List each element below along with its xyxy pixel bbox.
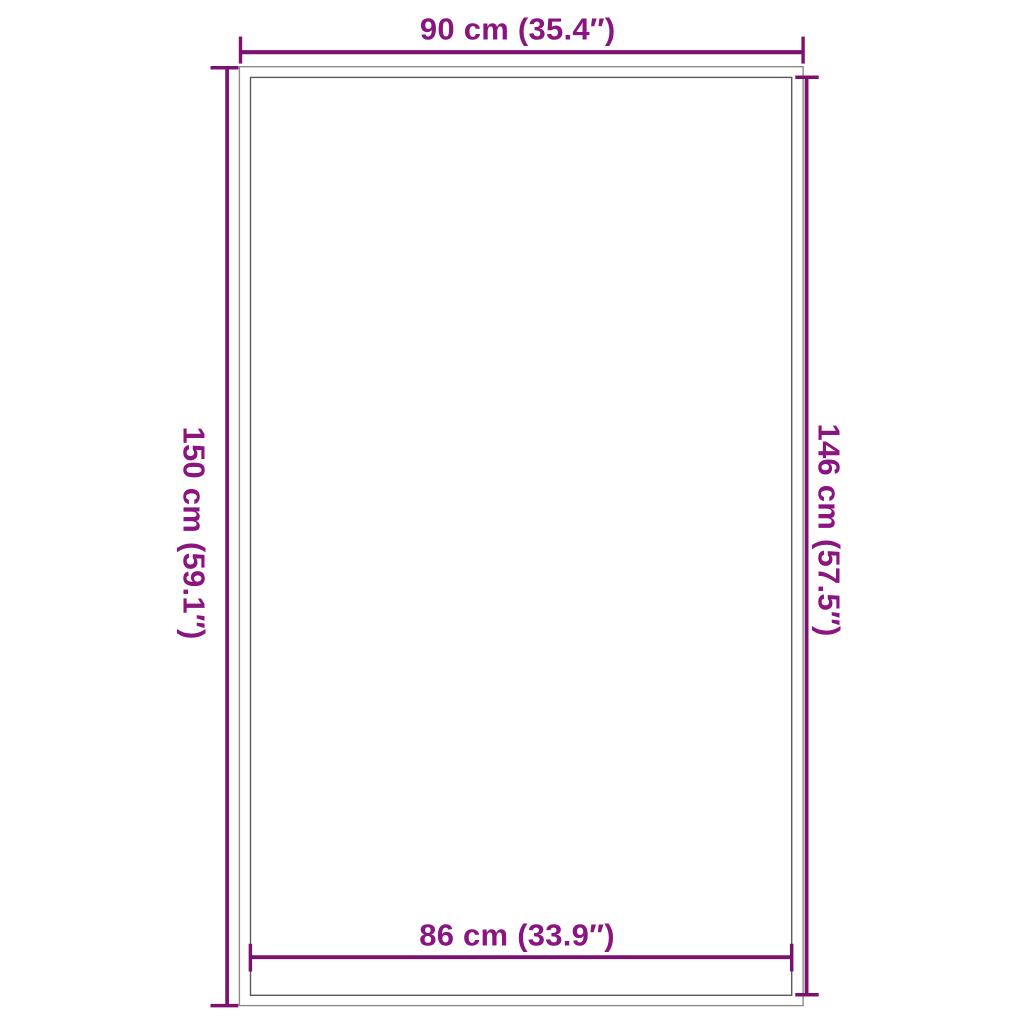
svg-text:86 cm (33.9″): 86 cm (33.9″) <box>419 917 615 952</box>
svg-text:150 cm (59.1″): 150 cm (59.1″) <box>176 426 211 639</box>
svg-text:90 cm (35.4″): 90 cm (35.4″) <box>420 11 616 46</box>
svg-text:146 cm (57.5″): 146 cm (57.5″) <box>812 423 847 636</box>
